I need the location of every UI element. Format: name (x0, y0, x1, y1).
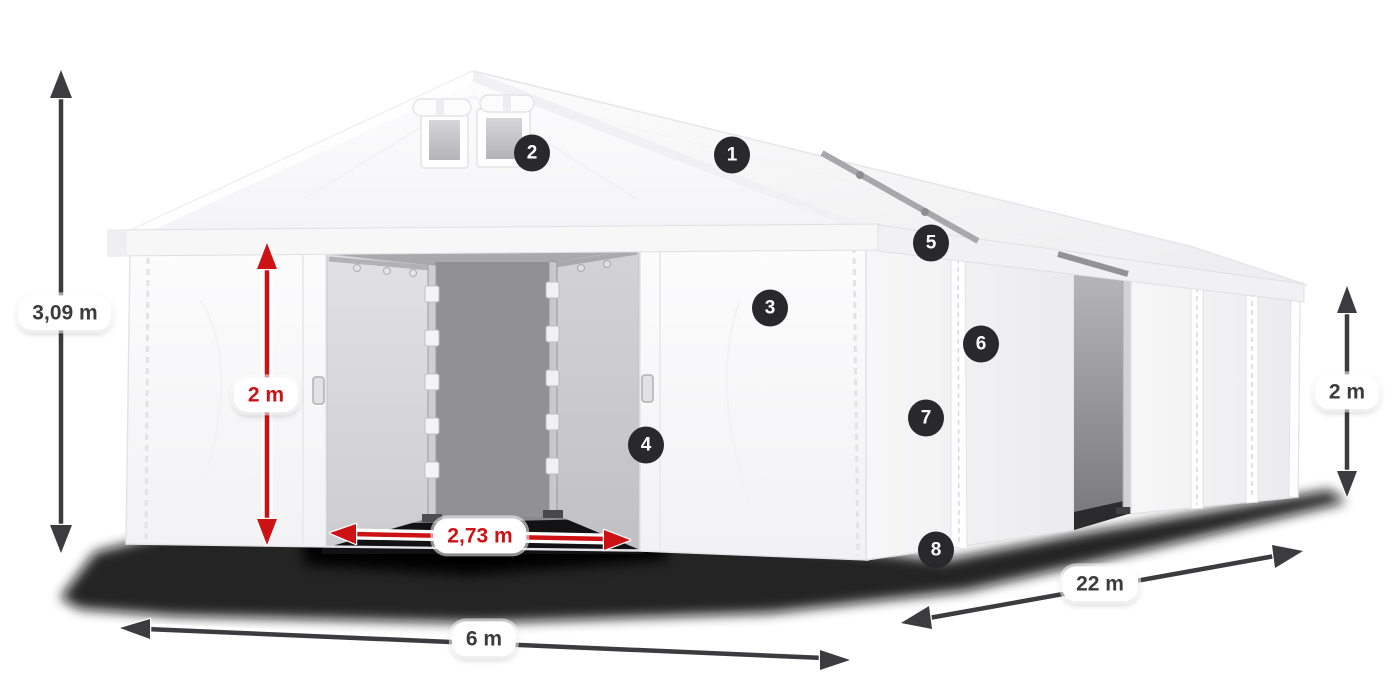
right-door-handle (642, 375, 653, 402)
curtain-hook (384, 268, 391, 275)
marker-8: 8 (918, 532, 954, 569)
marker-3: 3 (752, 290, 788, 327)
total-height-label: 3,09 m (18, 295, 111, 330)
door-opening-interior (322, 244, 644, 554)
tent-dimension-diagram: 3,09 m 2 m 2,73 m 6 m 22 m 2 m 1 2 3 4 5… (0, 0, 1400, 700)
door-height-label: 2 m (234, 377, 298, 412)
length-label: 22 m (1062, 566, 1138, 601)
left-door-handle (313, 377, 324, 404)
roll-strap (503, 95, 511, 112)
width-label: 6 m (452, 621, 516, 656)
right-door-edge-pole (549, 261, 557, 514)
marker-1: 1 (714, 137, 750, 174)
right-pole-base (543, 510, 563, 518)
roll-strap (436, 99, 444, 116)
side-door-gap (1074, 272, 1128, 530)
curtain-hook (410, 270, 417, 277)
roof-window-left-glass (429, 120, 460, 160)
marker-4: 4 (628, 427, 664, 464)
front-fascia-band (108, 224, 880, 256)
rear-corner-band (1289, 289, 1300, 497)
side-height-label: 2 m (1315, 374, 1379, 409)
left-door-panel (327, 254, 431, 547)
pole-joint (921, 208, 929, 216)
marker-6: 6 (963, 326, 999, 363)
tent-illustration (0, 0, 1400, 700)
curtain-hook (604, 261, 611, 268)
curtain-hook (578, 265, 585, 272)
marker-7: 7 (908, 400, 944, 437)
interior-deep-area (435, 262, 549, 517)
pole-joint (856, 171, 864, 179)
marker-2: 2 (514, 135, 550, 172)
right-door-panel (553, 249, 639, 549)
marker-5: 5 (913, 225, 949, 262)
partition-pole (1123, 274, 1131, 512)
curtain-hook (354, 265, 361, 272)
front-fascia-overhang (108, 230, 127, 256)
side-wall-rear-section (1131, 276, 1300, 514)
side-wall-front-section (866, 243, 1074, 560)
door-width-label: 2,73 m (433, 518, 526, 553)
